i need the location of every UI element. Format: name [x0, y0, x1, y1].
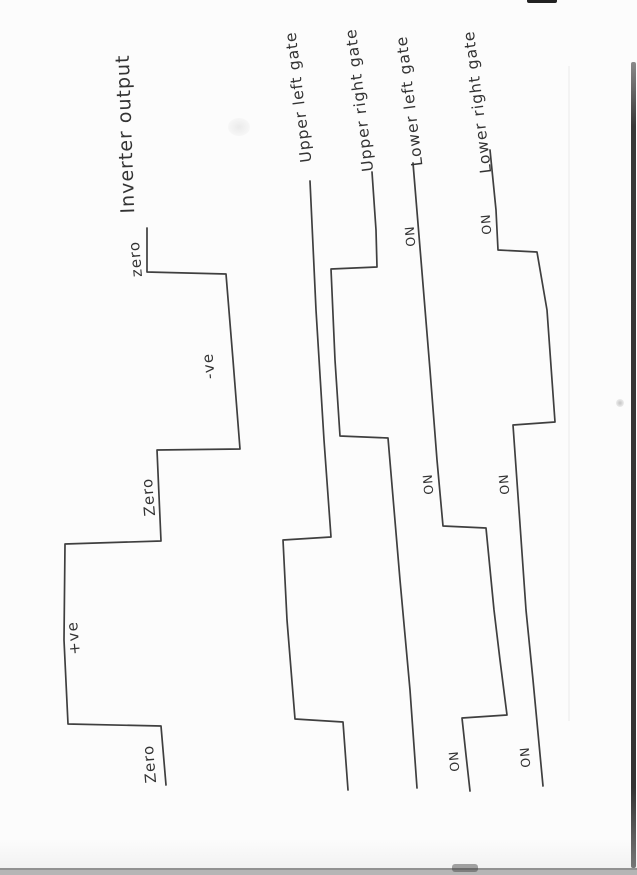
scan-right-edge-shadow: [631, 62, 636, 868]
scan-bottom-edge: [0, 868, 637, 875]
upper-right-gate-label: Upper right gate: [342, 27, 377, 172]
inverter-output-label: Inverter output: [112, 54, 140, 214]
inverter-output-value-label: zero: [125, 240, 146, 278]
lower-right-gate-trace: [490, 150, 555, 786]
lower-right-gate-label: Lower right gate: [460, 30, 495, 175]
inverter-output-value-label: -ve: [198, 352, 218, 380]
inverter-output-value-label: Zero: [139, 744, 160, 784]
inverter-output-value-label: Zero: [138, 477, 159, 517]
upper-right-gate-trace: [331, 172, 417, 788]
lower-right-gate-on-label: ON: [496, 473, 513, 495]
paper-speck: [616, 399, 624, 407]
lower-left-gate-on-label: ON: [446, 750, 463, 772]
scan-bottom-edge-shadow-spot: [452, 864, 478, 872]
inverter-output-value-label: +ve: [63, 620, 84, 655]
lower-left-gate-on-label: ON: [420, 473, 437, 495]
paper-bottom-shade: [0, 838, 637, 868]
scanned-paper-page: Inverter outputzero-veZero+veZeroUpper l…: [0, 0, 637, 875]
paper-smudge: [228, 118, 250, 136]
upper-left-gate-label: Upper left gate: [282, 31, 316, 164]
lower-right-gate-on-label: ON: [517, 746, 534, 768]
scan-top-edge-mark: [527, 0, 557, 3]
waveform-diagram: Inverter outputzero-veZero+veZeroUpper l…: [0, 0, 637, 875]
paper-crease-line: [568, 66, 570, 721]
upper-left-gate-trace: [283, 181, 348, 790]
lower-left-gate-label: Lower left gate: [393, 35, 427, 168]
lower-right-gate-on-label: ON: [478, 213, 495, 235]
lower-left-gate-on-label: ON: [402, 225, 419, 247]
